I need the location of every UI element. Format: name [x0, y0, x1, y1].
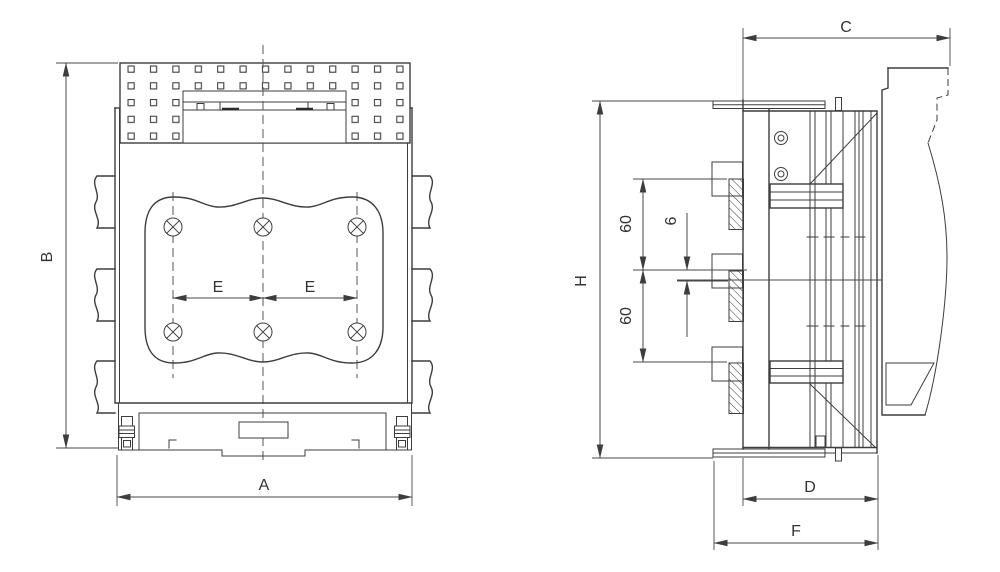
side-view: C H 60 60 6: [573, 19, 950, 550]
dim-label-C: C: [840, 19, 852, 36]
hatched-busbar: [729, 271, 744, 322]
dimension-F: F: [714, 461, 878, 550]
dim-label-E-left: E: [213, 279, 224, 296]
mounting-screws: [164, 218, 366, 341]
dim-label-E-right: E: [305, 279, 316, 296]
front-cover: [882, 68, 948, 415]
foot-block: [816, 436, 825, 447]
dim-label-60-lower: 60: [618, 307, 635, 325]
hatched-busbar: [729, 179, 744, 230]
dimension-C: C: [743, 19, 950, 100]
dim-label-60-upper: 60: [618, 215, 635, 233]
phillips-screw-icon: [348, 323, 366, 341]
dimension-D: D: [743, 455, 878, 550]
corner-bolt-right: [395, 417, 411, 451]
joint-ticks: [807, 237, 865, 326]
phillips-screw-icon: [164, 323, 182, 341]
dim-label-A: A: [259, 477, 270, 494]
dim-label-6: 6: [663, 216, 680, 225]
dimension-A: A: [117, 455, 412, 506]
side-body: [743, 98, 877, 462]
technical-drawing: B A E E: [0, 0, 1000, 572]
dimension-B: B: [39, 63, 118, 448]
terminal-tab: [412, 269, 432, 321]
busbar-strap-top: [770, 184, 843, 208]
bottom-bracket: [119, 403, 412, 456]
phillips-screw-icon: [348, 218, 366, 236]
handle-window: [886, 363, 934, 405]
drawing-page: B A E E: [0, 0, 1000, 572]
perforated-top-panel: [120, 45, 410, 143]
dimension-E: E E: [173, 279, 357, 298]
corner-bolt-left: [119, 417, 135, 451]
front-view: B A E E: [39, 45, 432, 506]
terminal-tab: [412, 361, 432, 413]
dim-label-H: H: [573, 275, 590, 287]
top-pin: [836, 98, 842, 111]
terminal-tab: [412, 176, 432, 228]
dim-label-D: D: [804, 479, 816, 496]
terminal-tab: [95, 361, 115, 413]
terminal-tab: [95, 176, 115, 228]
laminated-plates: [810, 112, 877, 454]
busbar-strap-bottom: [770, 361, 843, 383]
terminal-tab: [95, 269, 115, 321]
dim-label-F: F: [791, 523, 801, 540]
dim-label-B: B: [39, 252, 56, 263]
phillips-screw-icon: [254, 218, 272, 236]
rear-terminals: [712, 162, 744, 414]
phillips-screw-icon: [254, 323, 272, 341]
nameplate: [239, 422, 288, 438]
bottom-pin: [836, 448, 842, 461]
arc-chute-cover: [183, 91, 346, 143]
hatched-busbar: [729, 363, 744, 414]
panel-screw-icon: [775, 132, 788, 181]
phillips-screw-icon: [164, 218, 182, 236]
